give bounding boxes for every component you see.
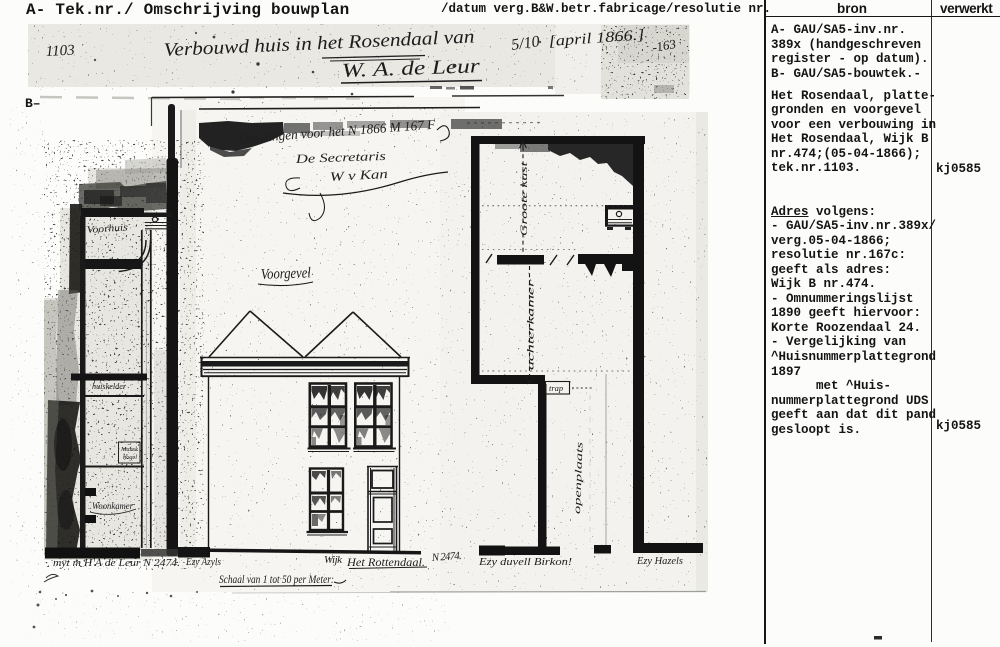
svg-text:W v Kan: W v Kan	[329, 166, 388, 184]
svg-text:hogel: hogel	[123, 454, 137, 461]
svg-text:Wijk: Wijk	[324, 554, 343, 566]
svg-text:N 2474.: N 2474.	[430, 550, 462, 564]
svg-text:Woonkamer: Woonkamer	[92, 502, 133, 512]
svg-text:Mansk: Mansk	[120, 446, 138, 453]
svg-text:Voorgevel: Voorgevel	[261, 265, 312, 283]
svg-text:Ezy Hazels: Ezy Hazels	[636, 556, 683, 567]
svg-text:achterkamer: achterkamer	[527, 279, 537, 370]
svg-text:trap: trap	[549, 383, 563, 393]
svg-text:myt m H A de Leur N 2474.: myt m H A de Leur N 2474.	[53, 558, 180, 569]
svg-text:Ezy duvell Birkon!: Ezy duvell Birkon!	[478, 556, 573, 568]
svg-text:huiskelder: huiskelder	[92, 382, 127, 391]
svg-text:Schaal van 1 tot 50 per Meter:: Schaal van 1 tot 50 per Meter:	[219, 572, 334, 586]
svg-text:Ezy Azyls: Ezy Azyls	[185, 557, 221, 568]
svg-text:1103: 1103	[45, 43, 75, 60]
svg-text:Groote kast: Groote kast	[520, 161, 530, 236]
